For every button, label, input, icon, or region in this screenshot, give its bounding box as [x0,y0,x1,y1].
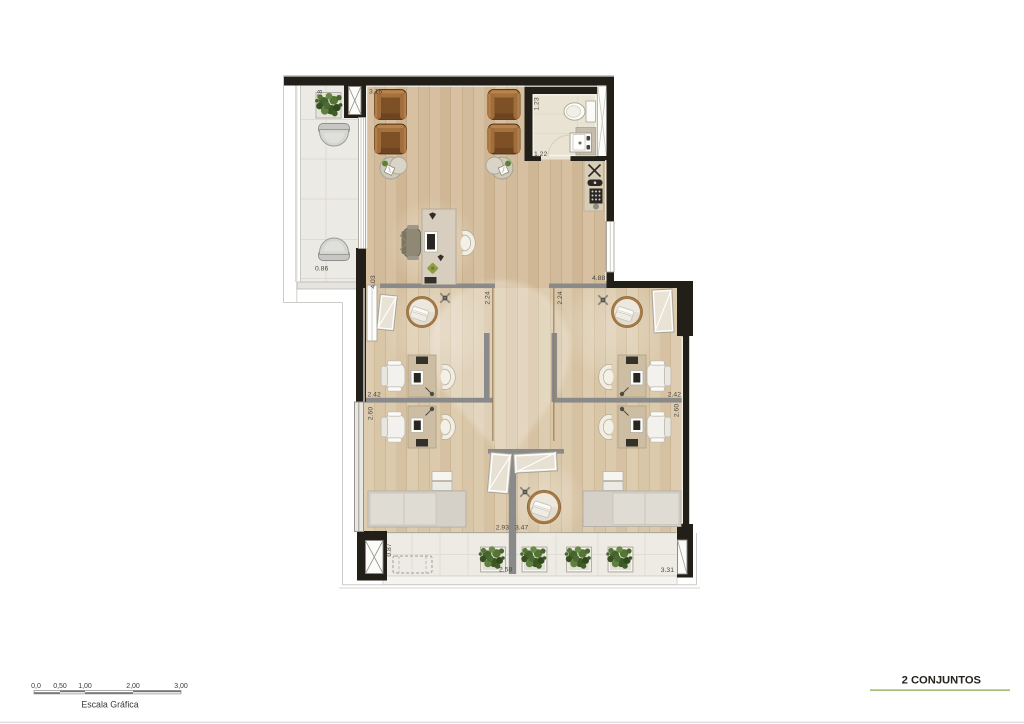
svg-text:3,00: 3,00 [174,683,188,690]
svg-text:3.31: 3.31 [661,567,674,574]
svg-text:2,00: 2,00 [126,683,140,690]
svg-text:2.60: 2.60 [368,407,375,420]
svg-text:2.78: 2.78 [317,90,324,103]
svg-text:2.42: 2.42 [668,392,681,399]
svg-text:3.47: 3.47 [515,525,528,532]
svg-text:2.24: 2.24 [557,291,564,304]
svg-text:0.87: 0.87 [386,543,393,556]
svg-text:4.03: 4.03 [370,275,377,288]
svg-text:0,0: 0,0 [31,683,41,690]
svg-text:1,00: 1,00 [78,683,92,690]
svg-text:2.60: 2.60 [674,404,681,417]
svg-text:0,50: 0,50 [53,683,67,690]
svg-text:2 CONJUNTOS: 2 CONJUNTOS [902,675,982,687]
svg-text:2.58: 2.58 [499,567,512,574]
svg-text:3.16: 3.16 [369,89,382,96]
svg-text:2.93: 2.93 [496,525,509,532]
svg-text:1.22: 1.22 [534,151,547,158]
svg-text:0.86: 0.86 [315,266,328,273]
svg-text:2.24: 2.24 [485,291,492,304]
svg-text:2.42: 2.42 [368,392,381,399]
svg-text:Escala Gráfica: Escala Gráfica [81,700,138,710]
svg-text:4.88: 4.88 [592,275,605,282]
svg-text:1.23: 1.23 [534,97,541,110]
